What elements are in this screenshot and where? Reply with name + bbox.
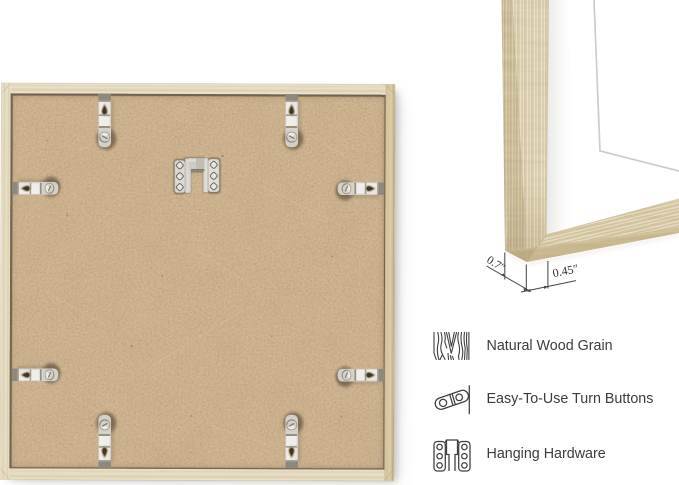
svg-text:0.45″: 0.45″ (551, 261, 579, 280)
